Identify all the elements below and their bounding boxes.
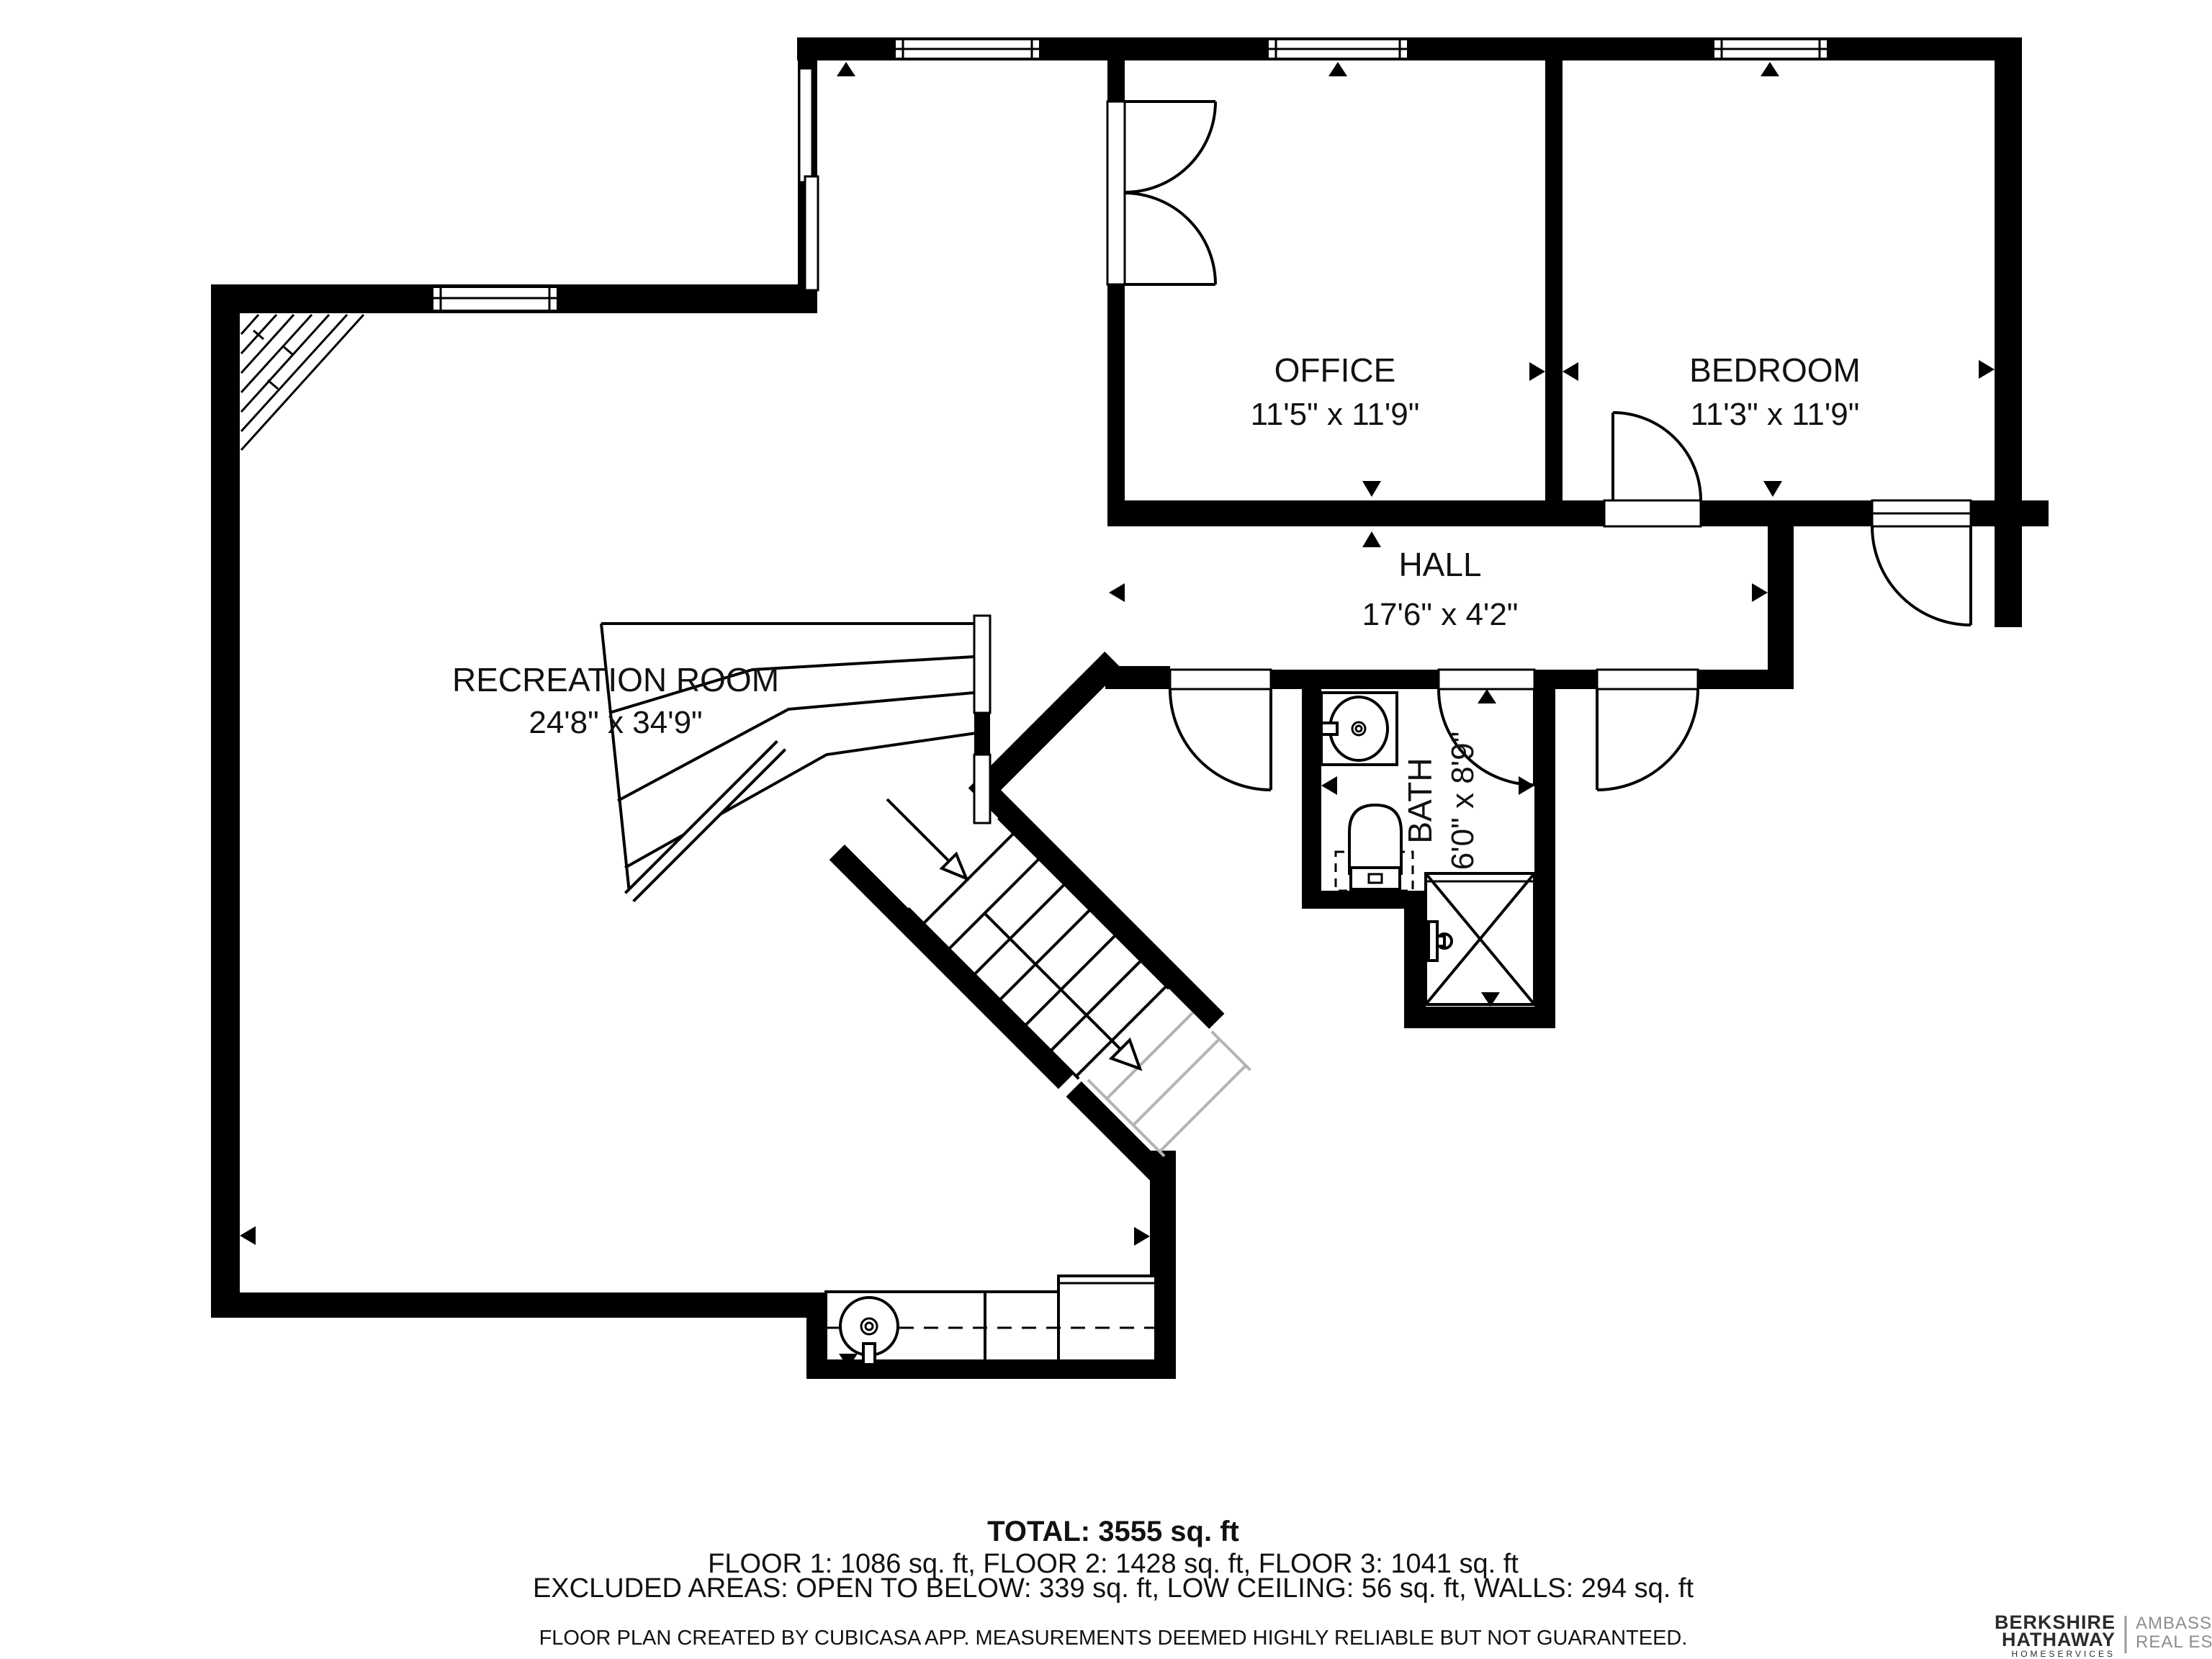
window-recroom-top — [432, 287, 558, 311]
floor-plan-canvas: RECREATION ROOM 24'8" x 34'9" OFFICE 11'… — [0, 0, 2212, 1659]
interior-walls — [1105, 48, 2049, 1028]
agency-name-line2: REAL ESTATE — [2136, 1632, 2212, 1652]
shower — [1426, 873, 1534, 1004]
hall-closet-door-right — [1597, 670, 1698, 790]
wall-hall-bottom-3 — [1534, 670, 1597, 689]
brand-name-line2: HATHAWAY — [2002, 1629, 2116, 1650]
bar-counter — [826, 1276, 1156, 1364]
wall-bath-left — [1302, 683, 1321, 909]
room-labels: RECREATION ROOM 24'8" x 34'9" OFFICE 11'… — [452, 351, 1861, 870]
wall-right-landing — [1995, 526, 2022, 627]
bath-dimensions: 6'0" x 8'9" — [1445, 732, 1480, 870]
bath-fixtures — [1321, 693, 1534, 1004]
summary-block: TOTAL: 3555 sq. ft FLOOR 1: 1086 sq. ft,… — [533, 1516, 1694, 1650]
wall-office-left-upper — [1107, 48, 1125, 102]
wall-hall-top-2 — [1701, 500, 1872, 526]
wall-office-left-lower — [1107, 284, 1125, 513]
staircase — [601, 616, 1392, 1181]
wall-hall-bottom-2 — [1271, 670, 1439, 689]
stair-wall-left-lower — [1066, 1082, 1166, 1181]
bath-sink — [1321, 693, 1397, 765]
marker-down-office — [1362, 481, 1381, 497]
marker-up-office-bottom — [1362, 531, 1381, 547]
bedroom-label: BEDROOM — [1689, 351, 1861, 389]
bedroom-door — [1604, 413, 1701, 526]
marker-up-bath-door — [1478, 689, 1496, 703]
wall-hall-bottom-4 — [1698, 670, 1794, 689]
office-double-door — [1107, 102, 1215, 284]
marker-right-office-divider — [1529, 362, 1545, 381]
wall-hall-right — [1768, 526, 1794, 689]
wall-bath-bottom-left — [1302, 891, 1404, 909]
excluded-areas-text: EXCLUDED AREAS: OPEN TO BELOW: 339 sq. f… — [533, 1573, 1694, 1604]
marker-down-bedroom — [1763, 481, 1782, 497]
disclaimer-text: FLOOR PLAN CREATED BY CUBICASA APP. MEAS… — [539, 1627, 1688, 1650]
exterior-door — [1872, 500, 1971, 625]
wall-right-bedroom — [1995, 37, 2022, 526]
marker-right-hall — [1752, 583, 1768, 602]
wall-recroom-left — [211, 284, 240, 1318]
window-office — [1267, 39, 1408, 59]
marker-up-extension — [837, 62, 855, 76]
floor-plan-page: { "plan": { "title": "Floor 3 floor plan… — [0, 0, 2212, 1659]
window-bedroom — [1713, 39, 1828, 59]
marker-left-hall — [1109, 583, 1125, 602]
office-dimensions: 11'5" x 11'9" — [1251, 397, 1420, 432]
window-extension-top — [894, 39, 1040, 59]
office-label: OFFICE — [1274, 351, 1396, 389]
stair-stub-wall — [974, 616, 990, 823]
stair-wall-upper-cross — [968, 652, 1123, 806]
windows — [432, 39, 1828, 311]
recreation-room-label: RECREATION ROOM — [452, 661, 779, 698]
marker-up-office-window — [1328, 62, 1347, 76]
bath-label-group: BATH 6'0" x 8'9" — [1401, 732, 1480, 870]
agency-name-line1: AMBASSADOR — [2136, 1614, 2212, 1633]
marker-left-bath — [1321, 776, 1337, 795]
marker-left-bedroom-divider — [1563, 362, 1578, 381]
bath-label: BATH — [1401, 757, 1439, 843]
hall-label: HALL — [1398, 546, 1481, 583]
hall-closet-door-left — [1170, 670, 1271, 790]
stair-wall-right — [985, 790, 1224, 1029]
wall-office-bedroom-divider — [1545, 48, 1563, 500]
wall-bath-right — [1534, 689, 1555, 1028]
marker-right-stair-cap — [1134, 1227, 1150, 1246]
winder-direction-arrow — [887, 799, 954, 866]
total-area-text: TOTAL: 3555 sq. ft — [987, 1516, 1239, 1547]
low-ceiling-hatch — [241, 315, 364, 450]
brand-name-line3: HOMESERVICES — [2012, 1649, 2116, 1659]
marker-left-recroom — [240, 1226, 256, 1245]
wall-recroom-bottom — [211, 1292, 821, 1318]
recreation-room-dimensions: 24'8" x 34'9" — [529, 705, 702, 740]
marker-up-bedroom-window — [1761, 62, 1779, 76]
wall-hall-top-1 — [1107, 500, 1604, 526]
bedroom-dimensions: 11'3" x 11'9" — [1691, 397, 1860, 432]
brokerage-logo: BERKSHIRE HATHAWAY HOMESERVICES AMBASSAD… — [1995, 1611, 2212, 1659]
wall-shower-bottom — [1404, 1007, 1555, 1028]
stair-rail — [629, 745, 781, 897]
hall-dimensions: 17'6" x 4'2" — [1362, 597, 1519, 632]
marker-right-bath — [1519, 776, 1534, 795]
wall-hall-top-3 — [1971, 500, 2049, 526]
marker-right-bedroom-wall — [1979, 360, 1995, 379]
